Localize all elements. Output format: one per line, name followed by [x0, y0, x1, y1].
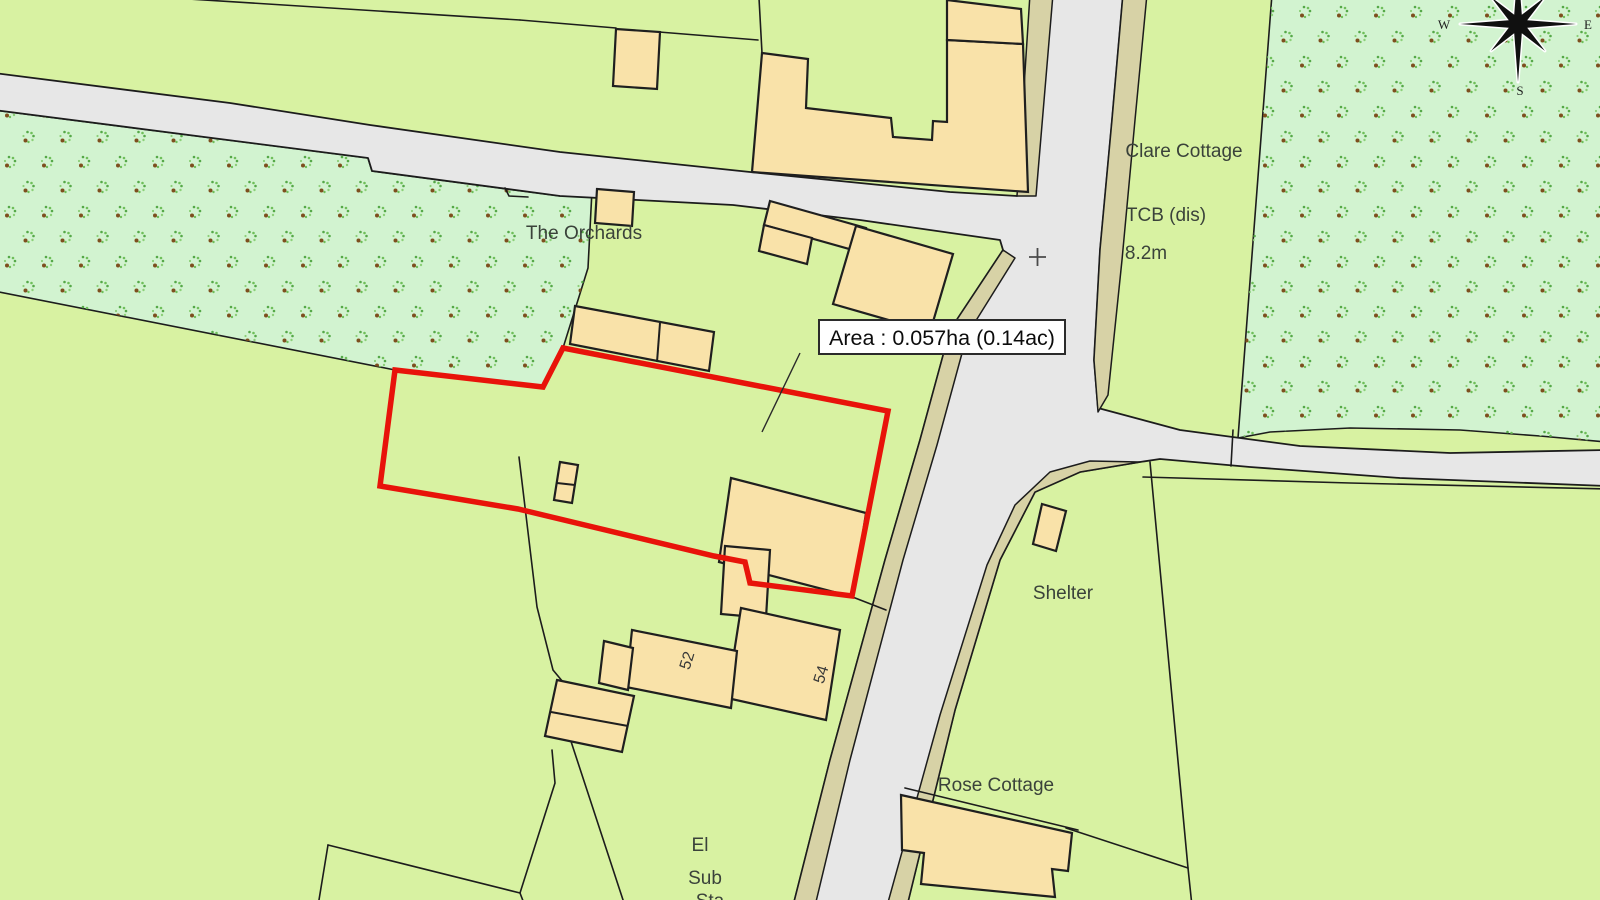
- compass-east-label: E: [1584, 17, 1592, 32]
- area-label-box[interactable]: Area : 0.057ha (0.14ac): [819, 320, 1065, 354]
- label-sta: Sta: [696, 891, 725, 900]
- orchard-area-east: [1238, 0, 1600, 442]
- area-label-text: Area : 0.057ha (0.14ac): [829, 326, 1055, 350]
- label-shelter: Shelter: [1033, 583, 1094, 604]
- label-tcb: TCB (dis): [1126, 205, 1206, 226]
- compass-west-label: W: [1438, 17, 1451, 32]
- label-rose-cottage: Rose Cottage: [938, 775, 1054, 796]
- label-el: El: [692, 835, 709, 856]
- plot-map-svg[interactable]: Area : 0.057ha (0.14ac) The Orchards Cla…: [0, 0, 1600, 900]
- label-sub: Sub: [688, 868, 722, 889]
- compass-south-label: S: [1516, 83, 1523, 98]
- label-clare-cottage: Clare Cottage: [1125, 141, 1242, 162]
- map-canvas[interactable]: Area : 0.057ha (0.14ac) The Orchards Cla…: [0, 0, 1600, 900]
- label-spot-height: 8.2m: [1125, 243, 1167, 264]
- label-the-orchards: The Orchards: [526, 223, 642, 244]
